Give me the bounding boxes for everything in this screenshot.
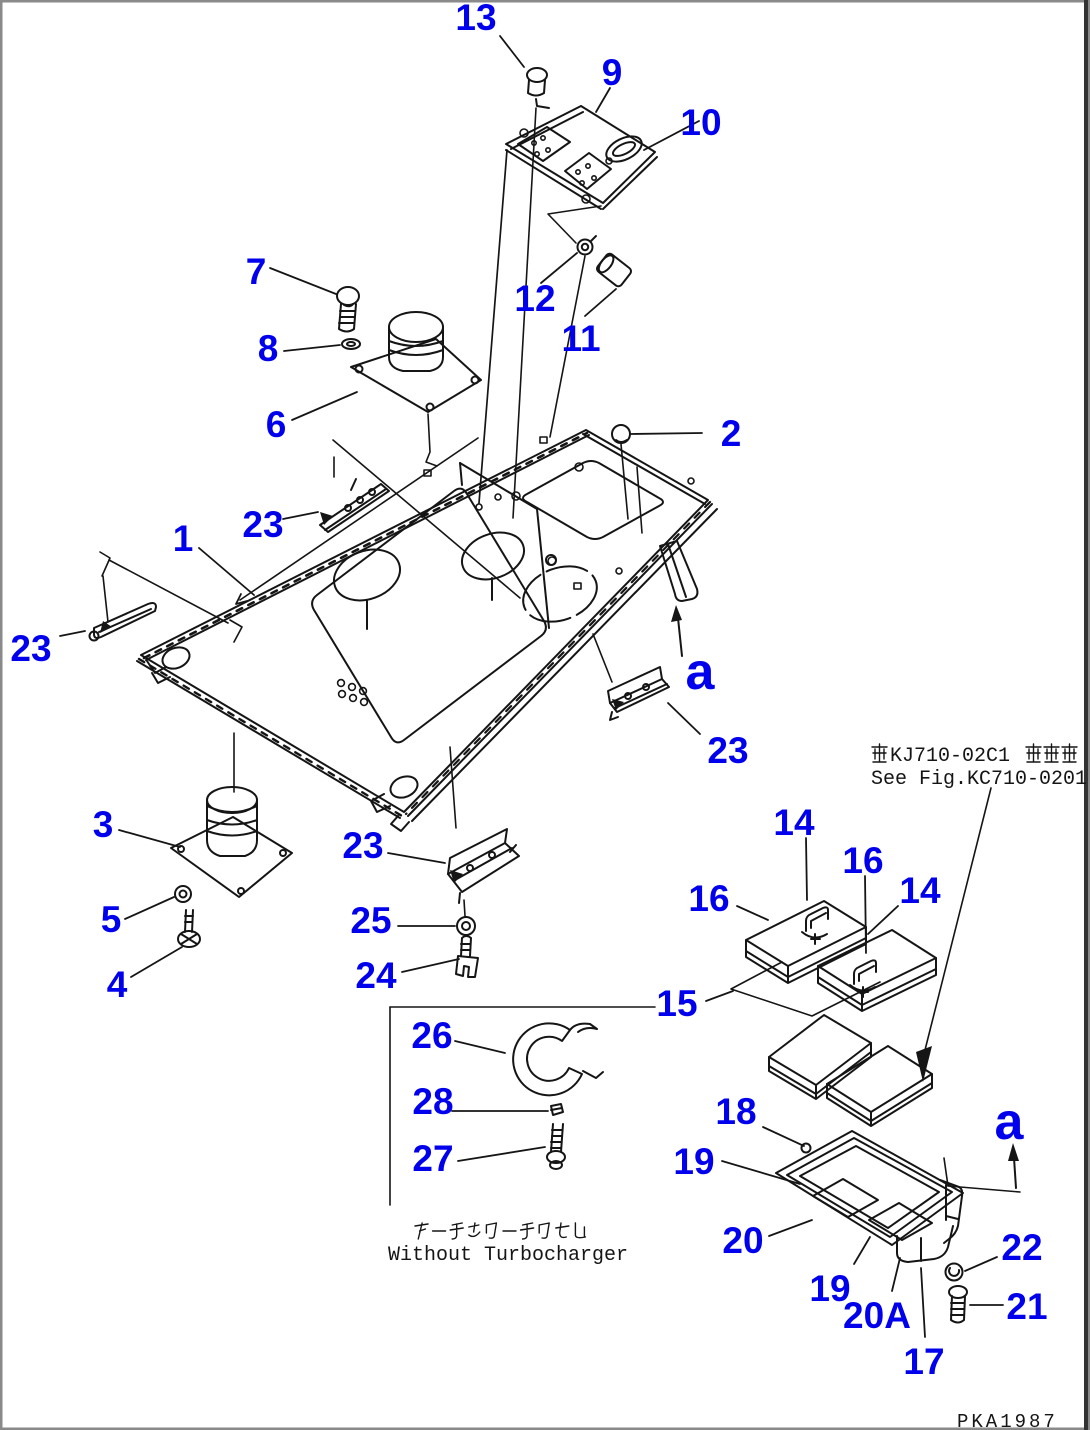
svg-text:See Fig.KC710-0201: See Fig.KC710-0201 bbox=[871, 768, 1087, 791]
svg-text:a: a bbox=[686, 643, 716, 701]
svg-text:7: 7 bbox=[246, 251, 267, 292]
svg-text:5: 5 bbox=[101, 899, 122, 940]
svg-text:20A: 20A bbox=[843, 1295, 911, 1336]
svg-text:KJ710-02C1: KJ710-02C1 bbox=[890, 745, 1010, 768]
svg-text:Without Turbocharger: Without Turbocharger bbox=[388, 1244, 628, 1267]
svg-text:3: 3 bbox=[93, 804, 114, 845]
svg-text:9: 9 bbox=[602, 52, 623, 93]
svg-text:23: 23 bbox=[242, 504, 283, 545]
svg-text:26: 26 bbox=[411, 1015, 452, 1056]
svg-text:23: 23 bbox=[707, 730, 748, 771]
svg-text:6: 6 bbox=[266, 404, 287, 445]
svg-text:27: 27 bbox=[412, 1138, 453, 1179]
svg-text:28: 28 bbox=[412, 1081, 453, 1122]
svg-text:16: 16 bbox=[842, 840, 883, 881]
svg-text:16: 16 bbox=[688, 878, 729, 919]
svg-text:12: 12 bbox=[514, 278, 555, 319]
svg-text:a: a bbox=[995, 1093, 1025, 1151]
svg-text:1: 1 bbox=[173, 518, 194, 559]
svg-text:21: 21 bbox=[1006, 1286, 1047, 1327]
svg-text:10: 10 bbox=[680, 102, 721, 143]
svg-text:8: 8 bbox=[258, 328, 279, 369]
svg-text:13: 13 bbox=[455, 0, 496, 38]
svg-text:24: 24 bbox=[355, 955, 397, 996]
svg-text:14: 14 bbox=[773, 802, 815, 843]
svg-text:2: 2 bbox=[721, 413, 742, 454]
svg-text:22: 22 bbox=[1001, 1227, 1042, 1268]
svg-text:25: 25 bbox=[350, 900, 391, 941]
svg-text:23: 23 bbox=[342, 825, 383, 866]
svg-text:14: 14 bbox=[899, 870, 941, 911]
svg-text:23: 23 bbox=[10, 628, 51, 669]
svg-text:17: 17 bbox=[903, 1341, 944, 1382]
svg-text:11: 11 bbox=[561, 318, 600, 359]
svg-text:PKA1987: PKA1987 bbox=[957, 1411, 1058, 1430]
svg-text:19: 19 bbox=[673, 1141, 714, 1182]
svg-text:18: 18 bbox=[715, 1091, 756, 1132]
svg-text:15: 15 bbox=[656, 983, 697, 1024]
svg-text:4: 4 bbox=[107, 964, 128, 1005]
svg-text:20: 20 bbox=[722, 1220, 763, 1261]
